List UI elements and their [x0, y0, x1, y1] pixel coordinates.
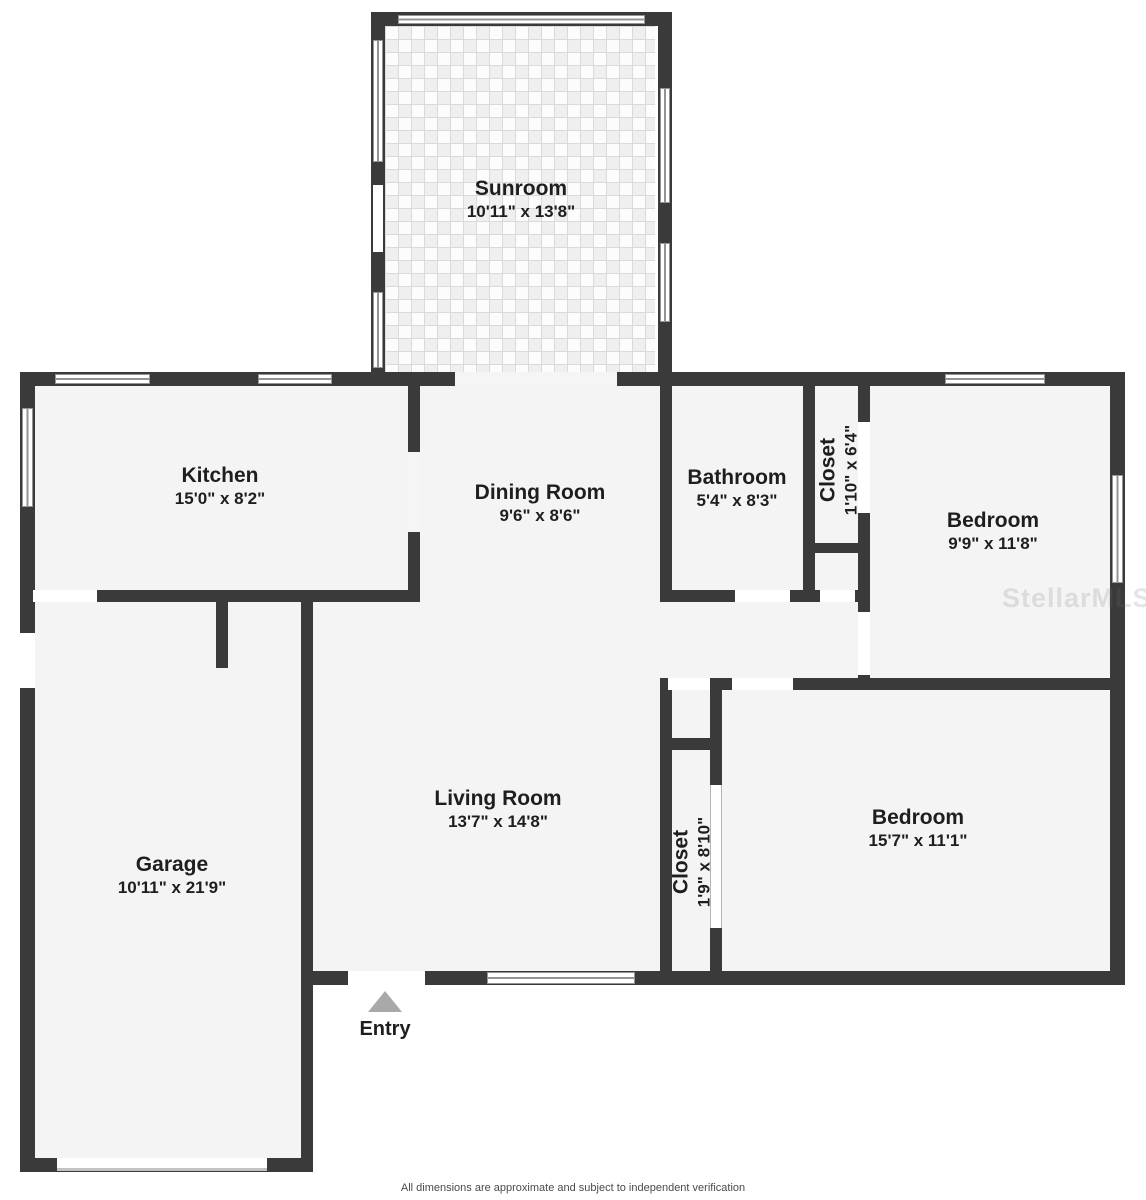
room-name: Dining Room: [475, 480, 606, 505]
living-room-bottom-window: [487, 972, 635, 984]
kitchen-top-window-1: [55, 374, 150, 384]
room-label-closet-top: Closet 1'10" x 6'4": [815, 425, 862, 515]
room-label-garage: Garage 10'11" x 21'9": [118, 852, 226, 899]
closet-cell-divider-horizontal: [660, 738, 722, 750]
kitchen-top-window-2: [258, 374, 332, 384]
room-label-dining-room: Dining Room 9'6" x 8'6": [475, 480, 606, 527]
room-label-bedroom-top: Bedroom 9'9" x 11'8": [947, 508, 1039, 555]
room-name: Kitchen: [175, 463, 265, 488]
room-name: Bedroom: [947, 508, 1039, 533]
watermark: StellarMLS: [1002, 583, 1146, 614]
floor-plan: Sunroom 10'11" x 13'8" Kitchen 15'0" x 8…: [0, 0, 1146, 1200]
room-dims: 1'9" x 8'10": [694, 817, 716, 907]
sunroom-top-window: [398, 15, 645, 24]
sunroom-right-window-1: [660, 88, 670, 203]
hall-cell-door: [820, 590, 855, 602]
entry-door-opening: [348, 971, 425, 985]
room-dims: 9'6" x 8'6": [475, 505, 606, 527]
room-name: Bedroom: [869, 805, 968, 830]
room-dims: 5'4" x 8'3": [687, 490, 786, 512]
room-label-living-room: Living Room 13'7" x 14'8": [434, 786, 561, 833]
garage-interior-stub: [216, 602, 228, 668]
garage-right-wall: [301, 590, 313, 1172]
sunroom-left-window-1: [373, 40, 383, 162]
hall-living-door: [668, 678, 710, 690]
room-name: Closet: [815, 425, 840, 515]
footer-disclaimer: All dimensions are approximate and subje…: [0, 1182, 1146, 1194]
bedroom-right-window: [1112, 475, 1123, 583]
room-name: Closet: [668, 817, 693, 907]
room-name: Living Room: [434, 786, 561, 811]
kitchen-garage-door: [33, 590, 97, 602]
bedroom-top-window: [945, 374, 1045, 384]
kitchen-left-window: [22, 408, 33, 507]
bathroom-door: [735, 590, 790, 602]
room-dims: 15'7" x 11'1": [869, 830, 968, 852]
kitchen-dining-opening: [408, 452, 420, 532]
room-dims: 9'9" x 11'8": [947, 533, 1039, 555]
room-label-kitchen: Kitchen 15'0" x 8'2": [175, 463, 265, 510]
room-label-bedroom-bottom: Bedroom 15'7" x 11'1": [869, 805, 968, 852]
room-dims: 10'11" x 13'8": [467, 201, 575, 223]
bedrooms-bottom-wall: [660, 971, 1125, 985]
garage-side-door: [20, 633, 35, 688]
sunroom-right-window-2: [660, 243, 670, 322]
room-name: Garage: [118, 852, 226, 877]
sunroom-left-window-2: [373, 292, 383, 368]
bedroom-bottom-top-wall: [660, 678, 1125, 690]
entry-label: Entry: [359, 1018, 410, 1041]
room-label-bathroom: Bathroom 5'4" x 8'3": [687, 465, 786, 512]
room-dims: 1'10" x 6'4": [841, 425, 863, 515]
sunroom-dining-opening: [455, 372, 617, 386]
bedroom-bottom-door: [732, 678, 793, 690]
bathroom-left-wall: [660, 386, 672, 602]
room-dims: 15'0" x 8'2": [175, 488, 265, 510]
room-name: Sunroom: [467, 176, 575, 201]
room-label-sunroom: Sunroom 10'11" x 13'8": [467, 176, 575, 223]
room-name: Bathroom: [687, 465, 786, 490]
bedroom-top-door: [858, 612, 870, 675]
closet-top-left-wall: [803, 386, 815, 602]
garage-floor: [35, 971, 301, 1158]
room-dims: 13'7" x 14'8": [434, 811, 561, 833]
garage-door-opening: [57, 1158, 267, 1171]
room-label-closet-bottom: Closet 1'9" x 8'10": [668, 817, 715, 907]
sunroom-left-opening: [373, 185, 383, 252]
entry-arrow-icon: [368, 991, 402, 1012]
room-dims: 10'11" x 21'9": [118, 877, 226, 899]
